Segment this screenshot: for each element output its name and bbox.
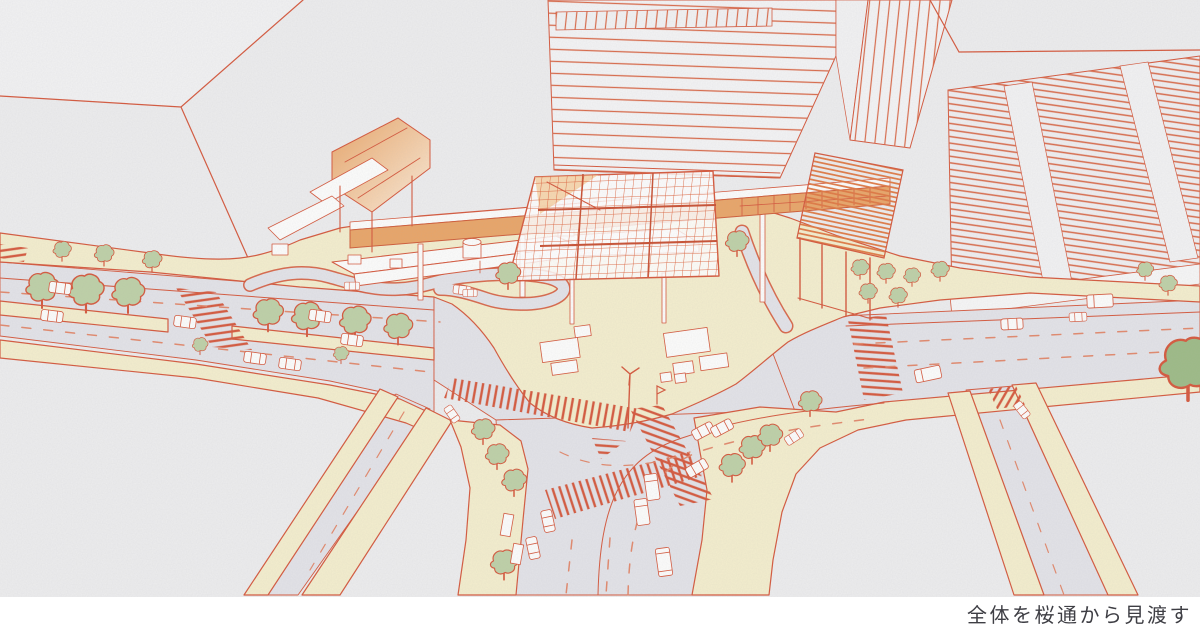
- screenshot: 全体を桜通から見渡す: [0, 0, 1200, 635]
- illustration: [0, 0, 1200, 635]
- caption-bar: 全体を桜通から見渡す: [0, 597, 1200, 635]
- paper-grain: [0, 0, 1200, 597]
- caption-text: 全体を桜通から見渡す: [967, 599, 1192, 628]
